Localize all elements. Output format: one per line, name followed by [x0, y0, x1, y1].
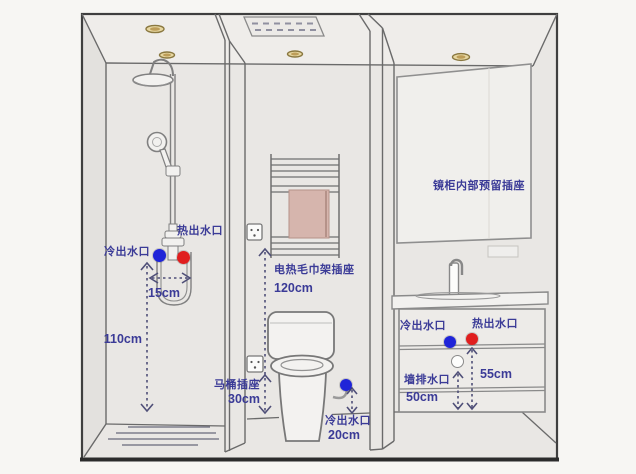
- wall-drain-marker: [451, 355, 464, 368]
- downlight-icon: [160, 52, 175, 58]
- towel: [289, 190, 329, 238]
- towel-rack-socket-label: 电热毛巾架插座: [274, 264, 355, 276]
- power-socket-icon-towel-rack: [247, 224, 262, 240]
- exhaust-fan-icon: [244, 17, 324, 36]
- shower-height-value: 110cm: [95, 333, 142, 347]
- vanity-hot-outlet-label: 热出水口: [472, 318, 518, 330]
- downlight-icon: [453, 54, 470, 61]
- hot-outlet-marker-shower: [177, 251, 190, 264]
- vanity-cold-outlet-label: 冷出水口: [400, 320, 446, 332]
- shower-hot-outlet-label: 热出水口: [177, 225, 223, 237]
- shower-cold-outlet-label: 冷出水口: [104, 246, 150, 258]
- toilet-socket-height: 30cm: [224, 393, 260, 407]
- cold-outlet-marker-toilet: [340, 379, 352, 391]
- mirror-cabinet: [397, 64, 531, 243]
- rain-shower-head-icon: [133, 74, 173, 87]
- vanity-hot-outlet-height: 55cm: [480, 368, 512, 382]
- towel-rack-socket-height: 120cm: [274, 282, 313, 296]
- shower-spacing-value: 15cm: [148, 287, 180, 301]
- hot-outlet-marker-vanity: [466, 333, 478, 345]
- downlight-icon: [146, 25, 164, 32]
- bathroom-layout-diagram: 热出水口 冷出水口 15cm 110cm 电热毛巾架插座 120cm 马桶插座 …: [0, 0, 636, 474]
- toilet-socket-label: 马桶插座: [214, 379, 260, 391]
- downlight-icon: [288, 51, 303, 57]
- cold-outlet-marker-shower: [153, 249, 166, 262]
- cold-outlet-marker-vanity: [444, 336, 456, 348]
- wall-niche: [488, 246, 518, 257]
- mirror-cabinet-socket-label: 镜柜内部预留插座: [433, 180, 525, 192]
- wall-drain-height: 50cm: [406, 391, 438, 405]
- wall-drain-label: 墙排水口: [404, 374, 450, 386]
- power-socket-icon-toilet: [247, 356, 263, 372]
- toilet-cold-outlet-label: 冷出水口: [325, 415, 371, 427]
- toilet-cold-outlet-height: 20cm: [328, 429, 360, 443]
- diagram-linework: [0, 0, 636, 474]
